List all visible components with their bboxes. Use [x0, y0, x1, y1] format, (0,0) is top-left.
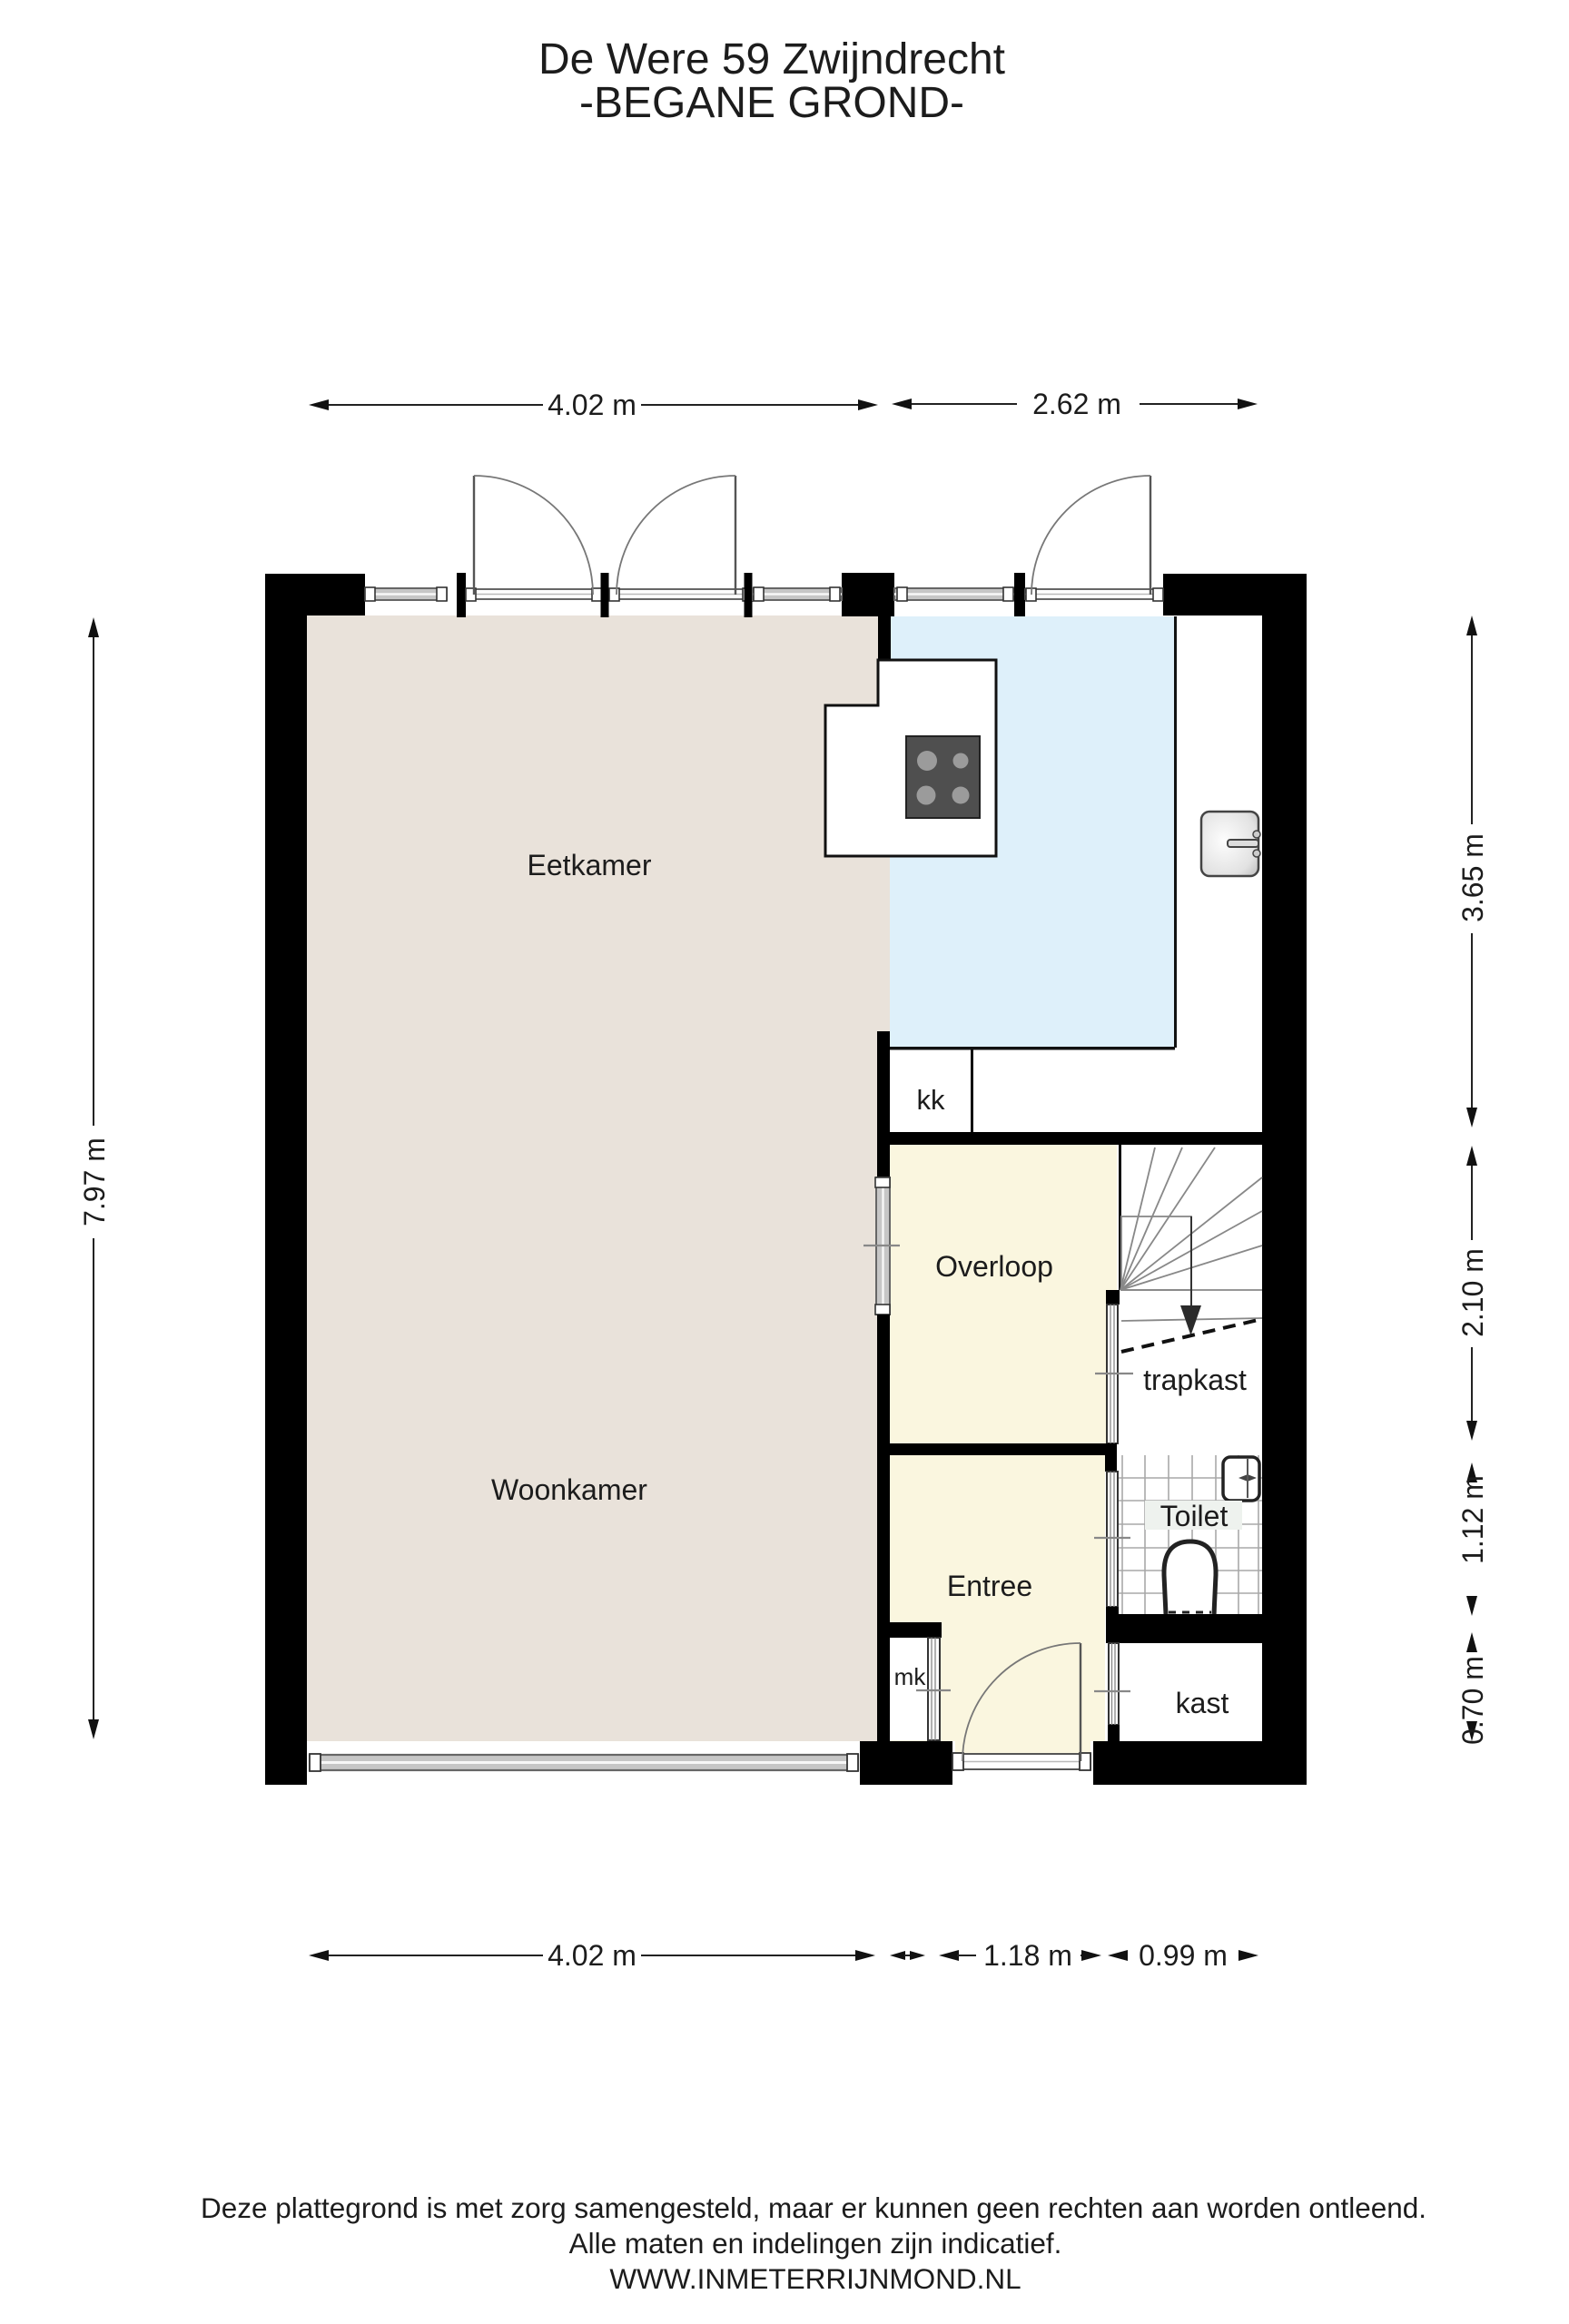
svg-text:Woonkamer: Woonkamer	[491, 1473, 647, 1506]
svg-text:kast: kast	[1176, 1687, 1229, 1719]
svg-text:4.02 m: 4.02 m	[548, 1939, 636, 1972]
svg-text:De Were 59 Zwijndrecht: De Were 59 Zwijndrecht	[538, 35, 1005, 84]
svg-text:0.99 m: 0.99 m	[1139, 1939, 1228, 1972]
svg-text:Alle maten en indelingen zijn: Alle maten en indelingen zijn indicatief…	[569, 2227, 1062, 2260]
svg-text:2.10 m: 2.10 m	[1456, 1248, 1489, 1337]
svg-text:3.65 m: 3.65 m	[1456, 833, 1489, 922]
svg-text:Deze plattegrond is met zorg s: Deze plattegrond is met zorg samengestel…	[201, 2191, 1426, 2224]
svg-text:Entree: Entree	[947, 1570, 1032, 1602]
svg-text:trapkast: trapkast	[1143, 1364, 1247, 1396]
svg-text:Overloop: Overloop	[935, 1250, 1053, 1283]
svg-text:1.12 m: 1.12 m	[1456, 1475, 1489, 1564]
svg-text:1.18 m: 1.18 m	[983, 1939, 1072, 1972]
svg-text:Toilet: Toilet	[1160, 1500, 1229, 1532]
svg-text:Eetkamer: Eetkamer	[528, 849, 652, 881]
svg-text:2.62 m: 2.62 m	[1032, 388, 1121, 420]
svg-text:0.70 m: 0.70 m	[1456, 1656, 1489, 1745]
svg-text:4.02 m: 4.02 m	[548, 389, 636, 421]
svg-text:7.97 m: 7.97 m	[78, 1137, 111, 1226]
svg-text:kk: kk	[917, 1084, 946, 1116]
svg-text:WWW.INMETERRIJNMOND.NL: WWW.INMETERRIJNMOND.NL	[609, 2262, 1021, 2295]
svg-text:mk: mk	[894, 1663, 927, 1690]
svg-text:-BEGANE GROND-: -BEGANE GROND-	[579, 79, 964, 127]
